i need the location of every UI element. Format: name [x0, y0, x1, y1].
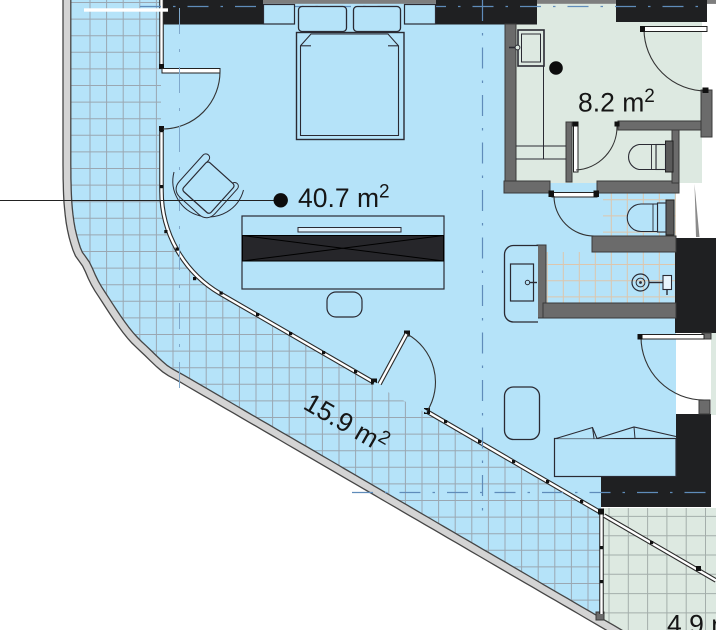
svg-text:4.9 m2: 4.9 m2 — [667, 608, 716, 630]
svg-text:40.7 m2: 40.7 m2 — [298, 181, 390, 213]
svg-text:8.2 m2: 8.2 m2 — [578, 86, 655, 118]
